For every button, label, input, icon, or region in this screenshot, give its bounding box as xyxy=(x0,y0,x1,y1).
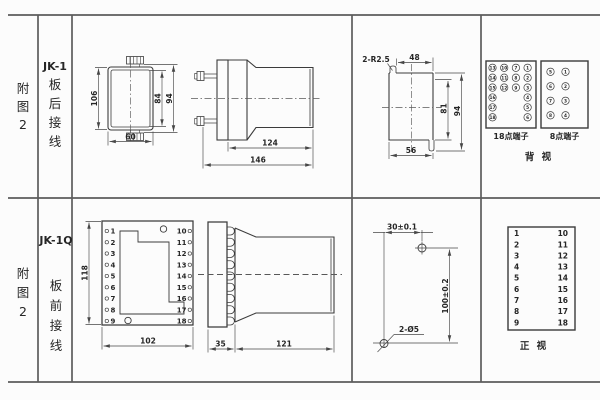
dim-118: 118 xyxy=(81,265,90,281)
wiring-char: 板 xyxy=(50,278,63,293)
terminal-8-pin-number: 4 xyxy=(564,113,567,119)
case-body xyxy=(228,60,313,140)
table-number-left: 9 xyxy=(514,318,519,327)
case-body xyxy=(235,228,334,322)
table-number-left: 7 xyxy=(514,296,519,305)
terminal-screw-top xyxy=(127,57,144,68)
front-right-terminals: 101112131415161718 xyxy=(177,228,192,326)
front-terminal-hole xyxy=(105,229,108,232)
terminal-18-pin-number: 10 xyxy=(501,66,507,72)
front-terminal-number: 9 xyxy=(111,318,116,326)
extension-lines xyxy=(373,230,433,241)
front-terminal-number: 12 xyxy=(177,250,187,258)
front-terminal-hole xyxy=(105,263,108,266)
front-terminal-hole xyxy=(105,319,108,322)
terminal-18-pin-number: 12 xyxy=(501,85,507,91)
front-terminal-hole xyxy=(188,241,191,244)
terminal-table-numbers: 123456789101112131415161718 xyxy=(514,229,568,327)
front-terminal-number: 17 xyxy=(177,306,187,314)
jk1-rear-view: 106 84 94 60 xyxy=(90,57,178,146)
terminal-18-pin-number: 5 xyxy=(526,105,529,111)
figure-char: 2 xyxy=(19,117,27,132)
dim-124: 124 xyxy=(262,139,278,148)
model-name: JK-1 xyxy=(42,60,67,73)
front-terminal-number: 14 xyxy=(177,273,187,281)
terminal-bump xyxy=(227,317,234,325)
rear-stud-bottom xyxy=(195,117,218,126)
row2-figure-label: 附 图 2 xyxy=(17,266,30,319)
table-grid xyxy=(8,15,600,382)
front-terminal-number: 10 xyxy=(177,228,187,236)
table-number-left: 8 xyxy=(514,307,519,316)
terminals-18-holes: 131415161718101112789123456 xyxy=(489,64,532,121)
row1-model-label: JK-1 板 后 接 线 xyxy=(42,60,67,149)
front-terminal-number: 2 xyxy=(111,239,116,247)
terminals-8-holes: 56781234 xyxy=(547,68,569,119)
terminal-bump xyxy=(227,306,234,314)
terminal-18-pin-number: 16 xyxy=(490,95,496,101)
dim-146: 146 xyxy=(250,156,266,165)
figure-char: 附 xyxy=(17,81,30,96)
wiring-char: 线 xyxy=(49,134,62,149)
terminal-18-pin-number: 2 xyxy=(526,75,529,81)
wiring-char: 后 xyxy=(49,96,62,111)
terminal-18-pin-number: 6 xyxy=(526,115,529,121)
front-terminal-number: 1 xyxy=(111,228,116,236)
terminal-18-pin-number: 4 xyxy=(526,95,529,101)
front-terminal-hole xyxy=(105,297,108,300)
front-terminal-hole xyxy=(188,263,191,266)
front-terminal-hole xyxy=(105,241,108,244)
table-number-right: 18 xyxy=(558,318,568,327)
table-number-left: 5 xyxy=(514,274,519,283)
dim-2-d5: 2-Ø5 xyxy=(399,325,419,334)
jk1q-front-view: 123456789 101112131415161718 118 102 xyxy=(81,221,194,350)
terminal-18-pin-number: 7 xyxy=(514,66,517,72)
front-terminal-hole xyxy=(105,308,108,311)
table-number-right: 17 xyxy=(558,307,568,316)
front-plate xyxy=(217,60,228,140)
front-terminal-number: 15 xyxy=(177,284,187,292)
figure-page: 附 图 2 JK-1 板 后 接 线 106 84 94 60 xyxy=(0,0,600,400)
front-terminal-hole xyxy=(105,274,108,277)
terminal-8-pin-number: 6 xyxy=(549,84,552,90)
row2-model-label: JK-1Q 板 前 接 线 xyxy=(38,234,72,353)
dim-84: 84 xyxy=(154,93,163,103)
table-number-left: 6 xyxy=(514,285,519,294)
front-terminal-table: 123456789101112131415161718 正 视 xyxy=(508,227,575,352)
front-view-label: 正 视 xyxy=(520,340,548,352)
terminal-8-pin-number: 7 xyxy=(549,99,552,105)
dim-121: 121 xyxy=(276,340,292,349)
table-number-left: 2 xyxy=(514,240,519,249)
dim-60: 60 xyxy=(125,133,135,142)
terminal-18-pin-number: 13 xyxy=(490,66,496,72)
terminal-18-pin-number: 8 xyxy=(514,75,517,81)
front-terminal-hole xyxy=(188,308,191,311)
table-number-right: 16 xyxy=(558,296,568,305)
dim-100: 100±0.2 xyxy=(441,278,450,313)
mounting-hole-top xyxy=(160,226,166,232)
terminal-18-pin-number: 3 xyxy=(526,85,529,91)
dim-106: 106 xyxy=(90,91,99,107)
hole-centermark xyxy=(415,242,458,255)
front-terminal-number: 13 xyxy=(177,261,187,269)
terminals-8-label: 8点端子 xyxy=(550,131,580,141)
front-terminal-hole xyxy=(188,319,191,322)
terminal-8-pin-number: 3 xyxy=(564,99,567,105)
rear-stud-top xyxy=(195,72,218,81)
figure-char: 图 xyxy=(17,285,30,300)
terminal-8-pin-number: 1 xyxy=(564,70,567,76)
rear-view-label: 背 视 xyxy=(525,151,553,163)
figure-char: 2 xyxy=(19,304,27,319)
wiring-char: 前 xyxy=(50,298,63,313)
terminal-18-pin-number: 17 xyxy=(490,105,496,111)
model-name: JK-1Q xyxy=(38,234,72,247)
table-number-right: 15 xyxy=(558,285,568,294)
dim-81: 81 xyxy=(440,103,449,113)
wiring-char: 板 xyxy=(49,77,62,92)
table-number-right: 13 xyxy=(558,263,568,272)
terminal-18-pin-number: 15 xyxy=(490,85,496,91)
dim-56: 56 xyxy=(406,146,416,155)
wiring-char: 接 xyxy=(50,318,63,333)
drilling-plan: 30±0.1 100±0.2 2-Ø5 xyxy=(373,223,458,353)
terminal-bump xyxy=(227,295,234,303)
terminal-8-pin-number: 5 xyxy=(549,70,552,76)
front-terminal-number: 8 xyxy=(111,306,116,314)
front-terminal-number: 3 xyxy=(111,250,116,258)
cover-outline xyxy=(120,231,184,314)
front-left-terminals: 123456789 xyxy=(105,228,115,326)
terminal-bump xyxy=(227,250,234,258)
front-terminal-hole xyxy=(188,252,191,255)
terminal-18-pin-number: 9 xyxy=(514,85,517,91)
terminal-8-pin-number: 2 xyxy=(564,84,567,90)
terminal-bump xyxy=(227,238,234,246)
dim-30: 30±0.1 xyxy=(387,223,417,232)
terminal-18-pin-number: 14 xyxy=(490,75,496,81)
front-terminal-hole xyxy=(105,252,108,255)
mounting-hole-bottom xyxy=(125,317,131,323)
rear-terminal-views: 131415161718101112789123456 18点端子 567812… xyxy=(486,61,588,163)
front-terminal-number: 7 xyxy=(111,295,116,303)
notch-bottom-right xyxy=(429,140,434,151)
table-number-right: 10 xyxy=(558,229,568,238)
table-number-right: 14 xyxy=(558,274,568,283)
front-terminal-number: 4 xyxy=(111,261,116,269)
front-terminal-number: 5 xyxy=(111,273,116,281)
terminal-bump xyxy=(227,272,234,280)
figure-char: 附 xyxy=(17,266,30,281)
technical-drawing-sheet: 附 图 2 JK-1 板 后 接 线 106 84 94 60 xyxy=(0,0,600,400)
terminal-18-pin-number: 1 xyxy=(526,66,529,72)
terminal-18-pin-number: 18 xyxy=(490,115,496,121)
notch-top-left xyxy=(390,66,396,73)
front-terminal-number: 11 xyxy=(177,239,187,247)
table-number-left: 4 xyxy=(514,263,519,272)
terminal-bump xyxy=(227,261,234,269)
front-terminal-number: 18 xyxy=(177,318,187,326)
figure-char: 图 xyxy=(17,99,30,114)
dim-102: 102 xyxy=(140,337,156,346)
front-terminal-number: 6 xyxy=(111,284,116,292)
front-terminal-hole xyxy=(188,229,191,232)
jk1-side-view: 124 146 xyxy=(191,60,322,169)
front-terminal-hole xyxy=(188,297,191,300)
front-terminal-hole xyxy=(188,286,191,289)
row1-figure-label: 附 图 2 xyxy=(17,81,30,132)
table-number-left: 1 xyxy=(514,229,519,238)
dim-2-R2.5: 2-R2.5 xyxy=(362,55,389,64)
dim-94: 94 xyxy=(165,93,174,103)
terminal-bump xyxy=(227,227,234,235)
panel-cutout-view: 2-R2.5 48 81 94 56 xyxy=(362,53,465,159)
front-terminal-hole xyxy=(188,274,191,277)
terminal-bump xyxy=(227,283,234,291)
terminal-bumps xyxy=(227,227,234,325)
front-terminal-number: 16 xyxy=(177,295,187,303)
table-number-right: 12 xyxy=(558,251,568,260)
front-terminal-hole xyxy=(105,286,108,289)
jk1q-side-view: 35 121 xyxy=(198,222,342,353)
terminal-8-pin-number: 8 xyxy=(549,113,552,119)
table-number-left: 3 xyxy=(514,251,519,260)
table-number-right: 11 xyxy=(558,240,568,249)
dim-35: 35 xyxy=(215,340,225,349)
terminal-18-pin-number: 11 xyxy=(501,75,507,81)
wiring-char: 线 xyxy=(50,338,63,353)
dim-94: 94 xyxy=(453,106,462,116)
terminals-18-label: 18点端子 xyxy=(493,131,528,141)
cutout-outline xyxy=(389,73,433,140)
dim-48: 48 xyxy=(409,53,419,62)
wiring-char: 接 xyxy=(49,115,62,130)
